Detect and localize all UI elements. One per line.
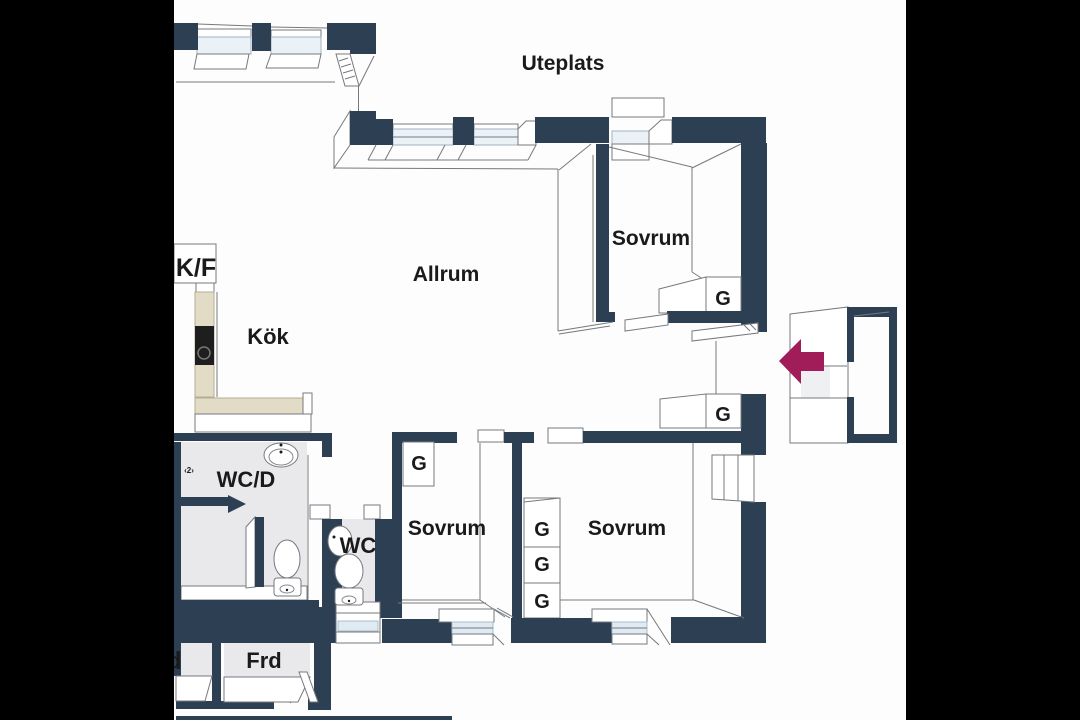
svg-text:G: G [411, 453, 427, 475]
svg-text:WC/D: WC/D [217, 467, 276, 492]
svg-text:Sovrum: Sovrum [408, 517, 486, 540]
svg-text:Sovrum: Sovrum [612, 227, 690, 250]
svg-text:Frd: Frd [246, 648, 281, 673]
svg-text:Sovrum: Sovrum [588, 517, 666, 540]
svg-text:G: G [534, 591, 550, 613]
svg-text:Allrum: Allrum [413, 263, 480, 286]
svg-text:‹2›: ‹2› [184, 466, 194, 475]
svg-text:G: G [715, 288, 731, 310]
svg-text:G: G [534, 554, 550, 576]
svg-text:Uteplats: Uteplats [522, 52, 605, 75]
svg-text:G: G [534, 519, 550, 541]
svg-text:G: G [715, 404, 731, 426]
svg-text:Kök: Kök [247, 324, 289, 349]
svg-text:K/F: K/F [176, 254, 216, 282]
svg-text:WC: WC [340, 533, 377, 558]
